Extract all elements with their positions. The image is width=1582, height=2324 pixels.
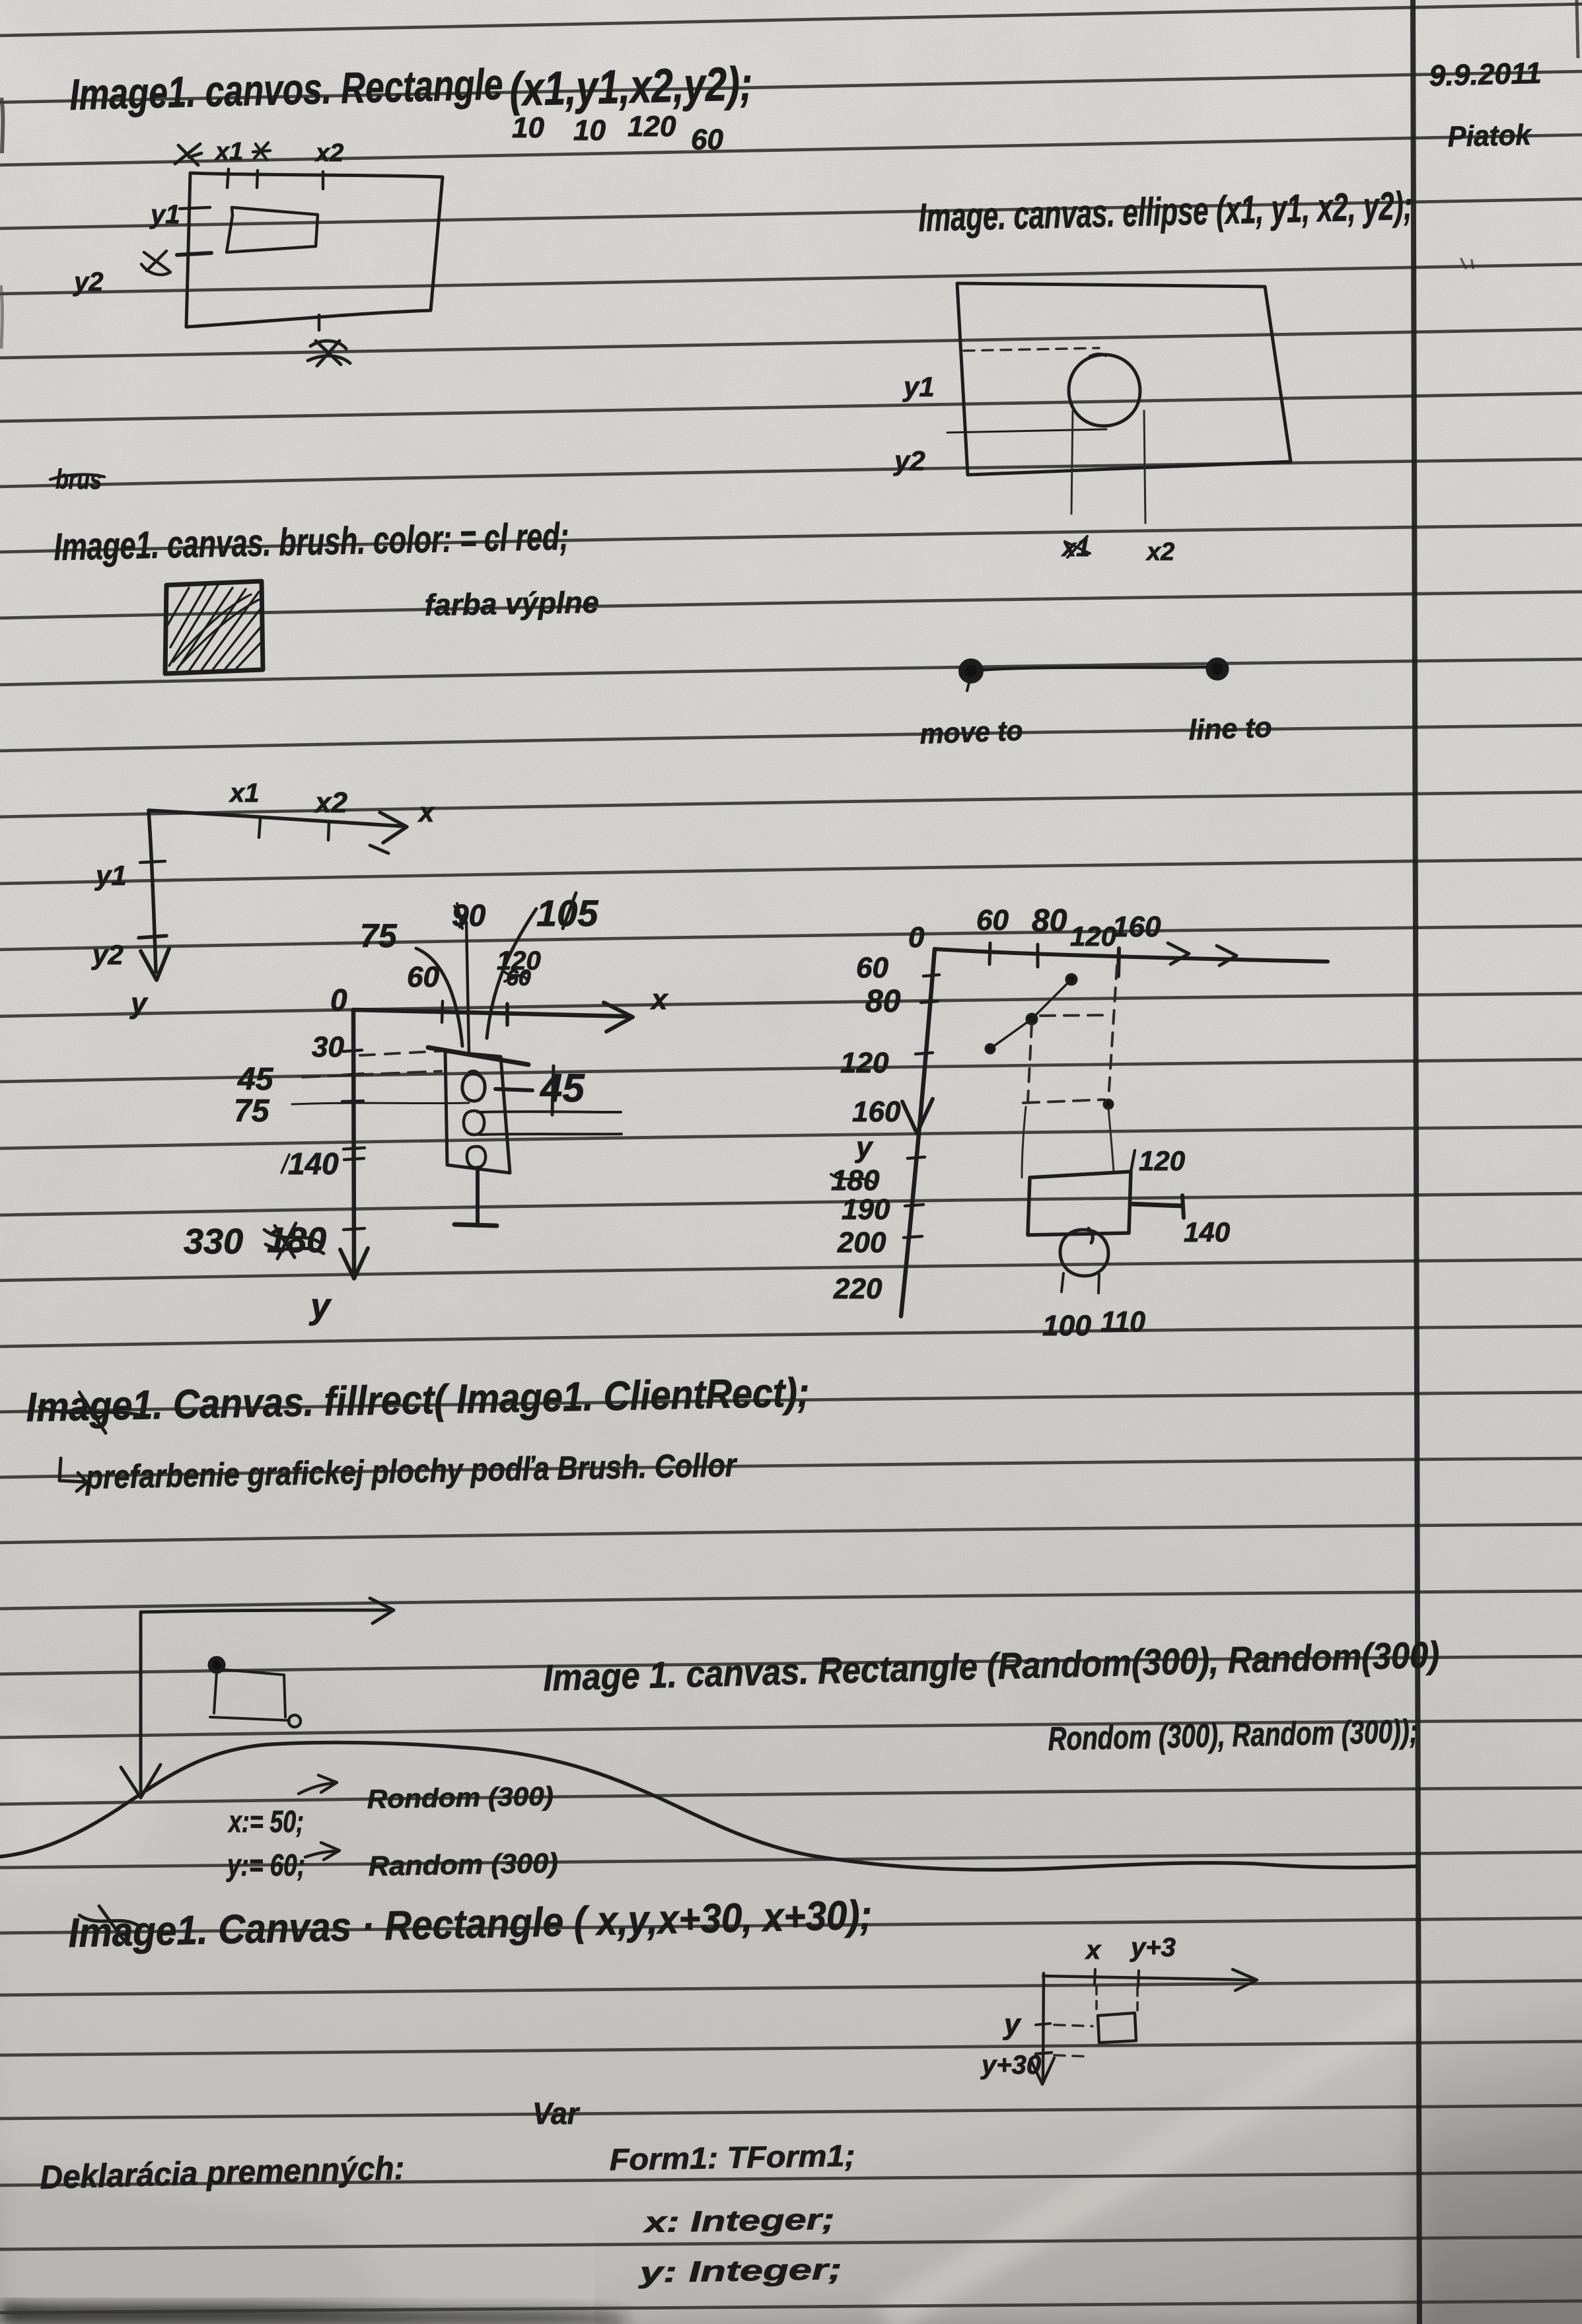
svg-text:y1: y1 <box>94 860 127 891</box>
svg-text:y2: y2 <box>893 445 925 476</box>
svg-text:Rondom (300), Random (300));: Rondom (300), Random (300)); <box>1048 1712 1418 1757</box>
svg-text:Piatok: Piatok <box>1447 119 1533 153</box>
svg-text:0: 0 <box>908 921 925 954</box>
svg-text:30: 30 <box>312 1031 344 1063</box>
svg-text:120: 120 <box>1070 921 1116 952</box>
svg-text:y1: y1 <box>902 371 935 402</box>
svg-text:x: x <box>417 796 435 827</box>
svg-text:y+30: y+30 <box>980 2051 1041 2080</box>
svg-text:(x1,y1,x2,y2);: (x1,y1,x2,y2); <box>509 57 753 116</box>
svg-text:farba výplne: farba výplne <box>424 584 599 622</box>
svg-text:y: y <box>855 1131 874 1164</box>
svg-text:10: 10 <box>573 114 606 147</box>
svg-text:Random (300): Random (300) <box>368 1847 558 1882</box>
svg-text:y2: y2 <box>91 939 124 970</box>
svg-text:45: 45 <box>540 1066 585 1110</box>
svg-text:60: 60 <box>407 961 439 993</box>
svg-text:y: y <box>308 1286 332 1326</box>
svg-text:120: 120 <box>1139 1145 1185 1176</box>
svg-text:Rondom (300): Rondom (300) <box>367 1782 554 1814</box>
svg-text:y2: y2 <box>73 267 104 297</box>
svg-text:0: 0 <box>330 983 347 1017</box>
svg-text:x: Integer;: x: Integer; <box>643 2203 836 2239</box>
svg-text:x2: x2 <box>314 787 347 819</box>
svg-text:190: 190 <box>842 1193 890 1226</box>
svg-text:10: 10 <box>512 112 544 144</box>
svg-text:x: x <box>1085 1936 1102 1965</box>
svg-text:120: 120 <box>628 110 676 143</box>
svg-text:220: 220 <box>833 1273 882 1305</box>
svg-text:y+3: y+3 <box>1130 1933 1176 1962</box>
svg-text:160: 160 <box>1112 911 1161 943</box>
svg-text:line to: line to <box>1188 712 1273 746</box>
svg-text:x2: x2 <box>1145 538 1174 566</box>
svg-text:move to: move to <box>919 715 1024 750</box>
svg-text:9.9.2011: 9.9.2011 <box>1429 56 1542 92</box>
svg-text:75: 75 <box>360 917 398 954</box>
svg-text:60: 60 <box>976 904 1009 936</box>
svg-text:x: x <box>650 983 668 1016</box>
svg-text:x1: x1 <box>229 779 260 808</box>
svg-text:y: Integer;: y: Integer; <box>637 2253 842 2289</box>
svg-text:140: 140 <box>288 1146 339 1181</box>
svg-text:Var: Var <box>532 2096 580 2130</box>
svg-text:80: 80 <box>1032 903 1067 938</box>
svg-text:75: 75 <box>234 1094 270 1129</box>
svg-text:60: 60 <box>691 123 723 156</box>
svg-text:y:= 60;: y:= 60; <box>226 1848 305 1882</box>
svg-text:140: 140 <box>1184 1216 1230 1248</box>
svg-text:110: 110 <box>1100 1306 1146 1338</box>
svg-text:100: 100 <box>1042 1310 1092 1342</box>
svg-text:x2: x2 <box>314 139 343 167</box>
svg-text:brus: brus <box>55 464 102 495</box>
svg-text:y: y <box>129 987 149 1020</box>
svg-text:x1: x1 <box>214 138 243 166</box>
svg-text:120: 120 <box>840 1047 889 1079</box>
svg-text:45: 45 <box>237 1062 274 1097</box>
svg-text:y: y <box>1003 2008 1022 2041</box>
svg-text:200: 200 <box>837 1226 886 1259</box>
svg-text:80: 80 <box>865 984 901 1019</box>
svg-text:y1: y1 <box>149 200 180 229</box>
svg-text:60: 60 <box>856 952 888 984</box>
svg-text:160: 160 <box>852 1096 901 1128</box>
svg-text:Form1: TForm1;: Form1: TForm1; <box>609 2138 855 2177</box>
svg-text:x:= 50;: x:= 50; <box>227 1804 304 1839</box>
svg-text:330: 330 <box>184 1222 243 1261</box>
